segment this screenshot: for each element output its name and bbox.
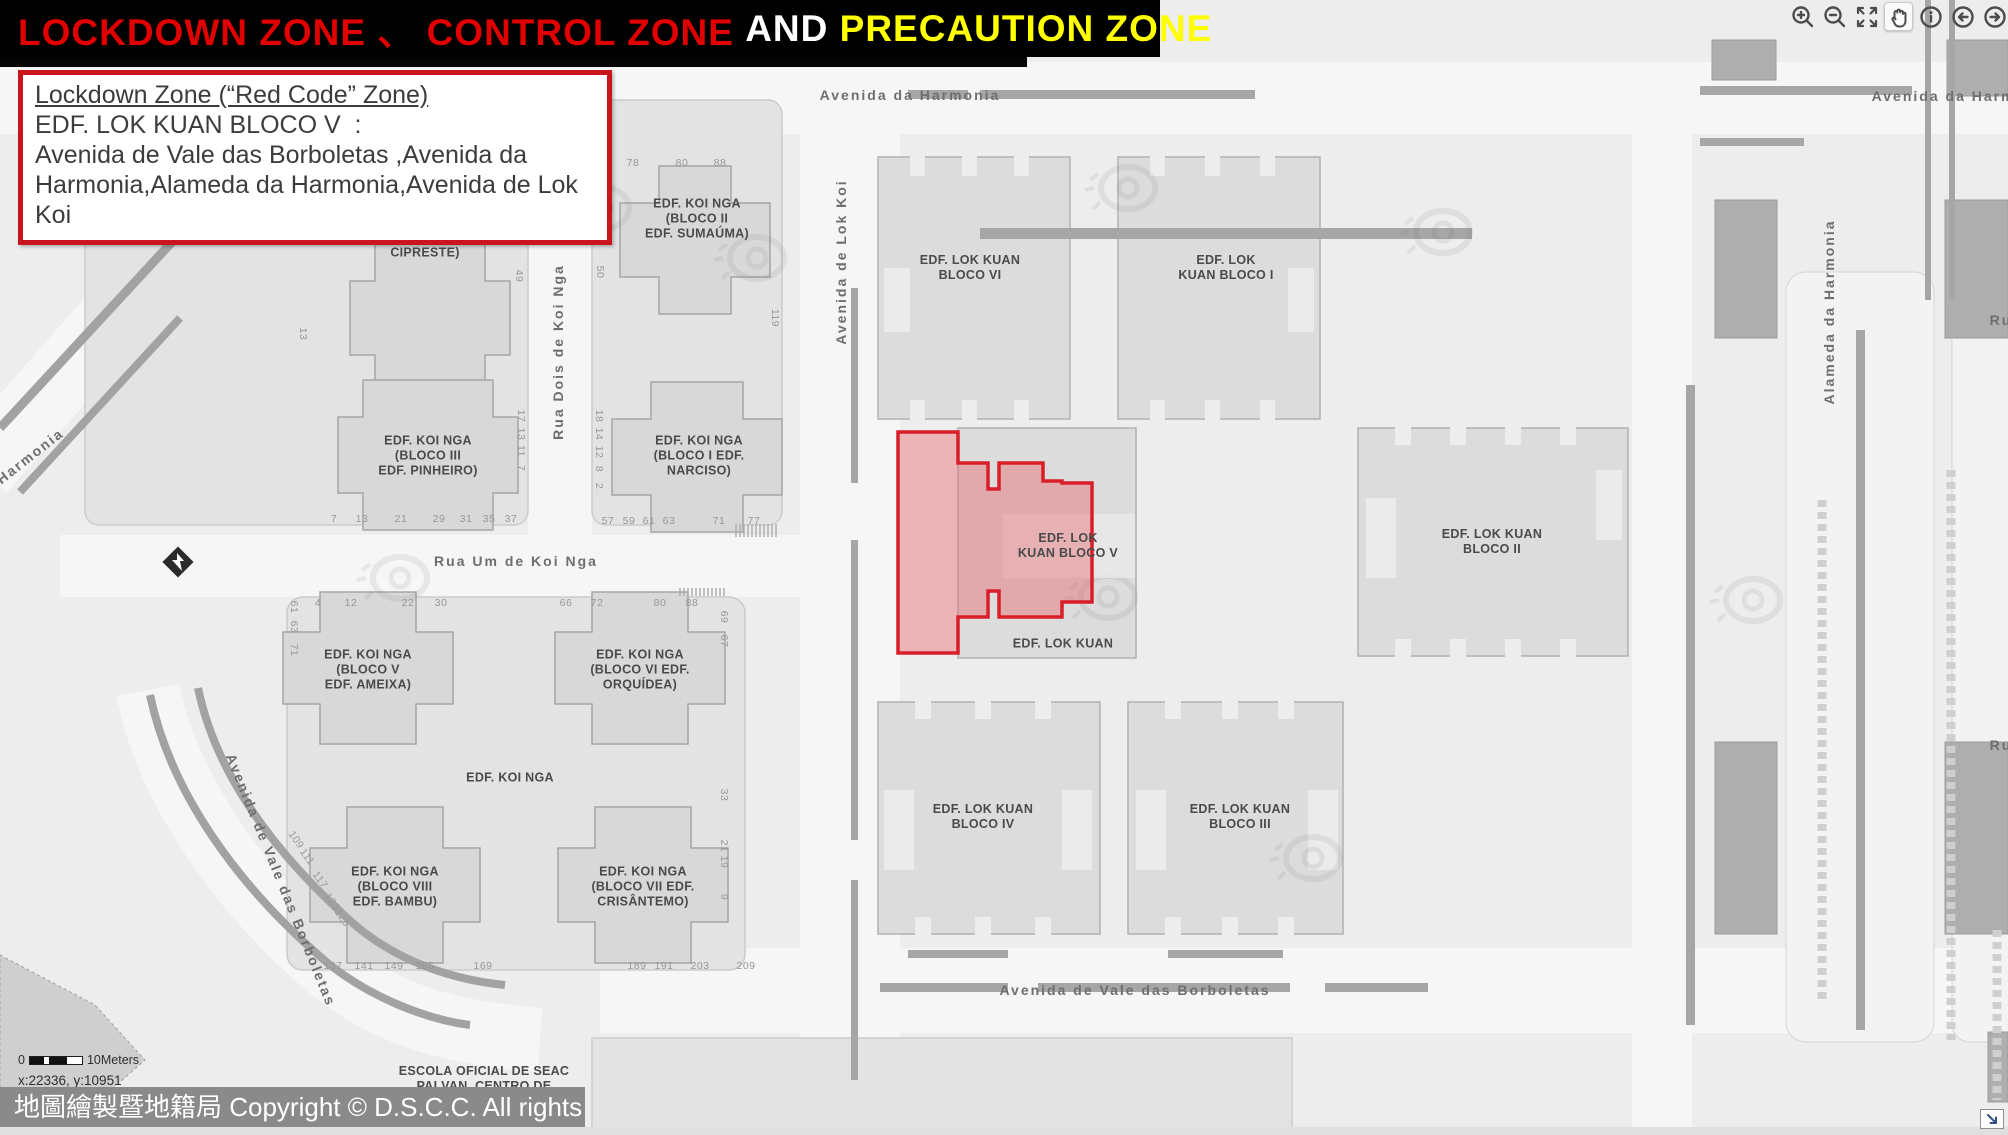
next-extent-icon	[1982, 4, 2008, 30]
info-body: Avenida de Vale das Borboletas ,Avenida …	[35, 140, 595, 230]
bottom-edge	[0, 1127, 2008, 1135]
title-banner: LOCKDOWN ZONE 、 CONTROL ZONE AND PRECAUT…	[0, 0, 1160, 57]
title-segment: AND	[745, 8, 839, 50]
zoom-out-icon	[1822, 4, 1848, 30]
full-extent-button[interactable]	[1852, 2, 1881, 31]
scale-bar: 0 10Meters	[18, 1053, 139, 1067]
lockdown-info-box: Lockdown Zone (“Red Code” Zone) EDF. LOK…	[18, 70, 612, 245]
overview-map-toggle[interactable]	[1980, 1109, 2004, 1129]
zoom-in-icon	[1790, 4, 1816, 30]
overview-arrow-icon	[1985, 1112, 1999, 1126]
scale-start-label: 0	[18, 1053, 25, 1067]
previous-extent-icon	[1950, 4, 1976, 30]
map-viewer: Avenida da HarmoniaAvenida da HarmoniaAv…	[0, 0, 2008, 1135]
title-segment: LOCKDOWN ZONE 、 CONTROL ZONE	[18, 2, 745, 56]
previous-extent-button[interactable]	[1948, 2, 1977, 31]
map-toolbar	[1788, 2, 2008, 31]
title-segment: PRECAUTION ZONE	[840, 8, 1213, 50]
identify-button[interactable]	[1916, 2, 1945, 31]
scale-bar-graphic	[29, 1056, 83, 1065]
zoom-in-button[interactable]	[1788, 2, 1817, 31]
zoom-out-button[interactable]	[1820, 2, 1849, 31]
info-heading: Lockdown Zone (“Red Code” Zone)	[35, 80, 595, 110]
identify-icon	[1918, 4, 1944, 30]
scale-end-label: 10Meters	[87, 1053, 139, 1067]
next-extent-button[interactable]	[1980, 2, 2008, 31]
copyright-banner: 地圖繪製暨地籍局 Copyright © D.S.C.C. All rights…	[0, 1087, 585, 1127]
info-subheading: EDF. LOK KUAN BLOCO V :	[35, 110, 595, 140]
cursor-coordinates: x:22336, y:10951	[18, 1073, 122, 1088]
pan-button[interactable]	[1884, 2, 1913, 31]
pan-hand-icon	[1886, 4, 1912, 30]
title-underlay	[0, 57, 1027, 67]
full-extent-icon	[1854, 4, 1880, 30]
